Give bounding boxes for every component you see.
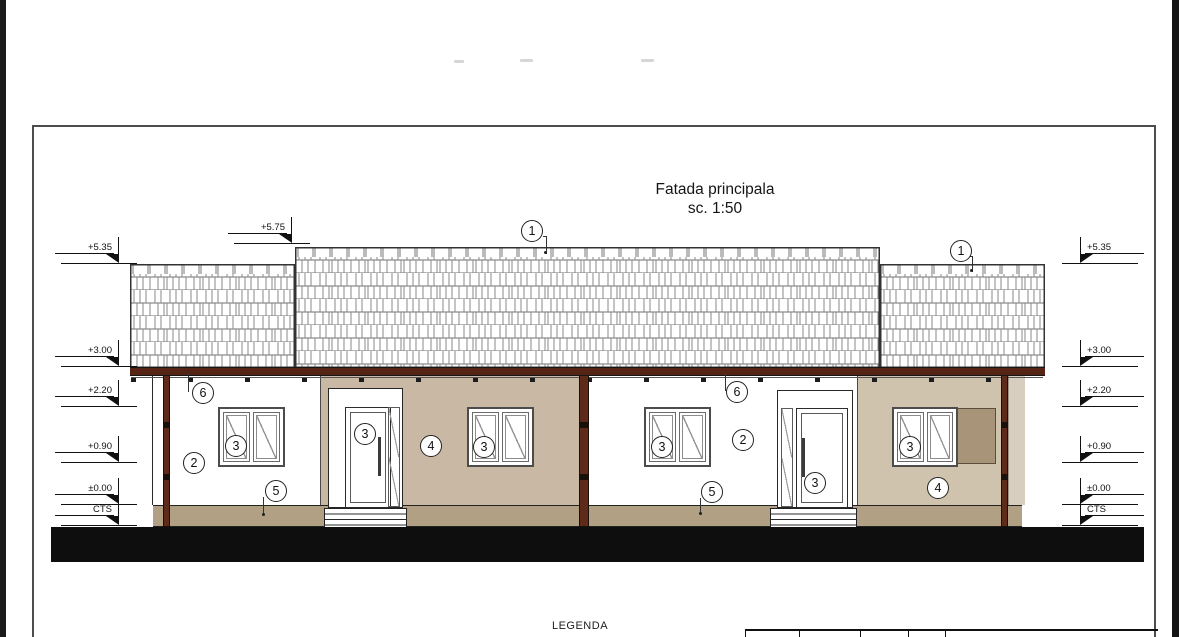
callout-number: 3 bbox=[659, 441, 666, 454]
leader-dot bbox=[544, 251, 547, 254]
ground-line bbox=[51, 527, 1144, 562]
callout-number: 6 bbox=[200, 387, 207, 400]
callout-3: 3 bbox=[354, 423, 376, 445]
level-line bbox=[1062, 462, 1138, 463]
window-casement bbox=[253, 412, 280, 462]
table-divider bbox=[860, 631, 861, 637]
level-marker-left-220: +2.20 bbox=[55, 384, 127, 408]
level-tick bbox=[1080, 237, 1081, 254]
window-casement bbox=[927, 412, 954, 462]
roof-fascia-band bbox=[130, 367, 1045, 376]
window-right-2 bbox=[892, 407, 958, 467]
level-tick bbox=[1080, 340, 1081, 357]
glass-pane bbox=[682, 415, 703, 459]
level-arrow-icon bbox=[106, 516, 119, 525]
level-label: +0.90 bbox=[88, 441, 112, 452]
page-left-black-bar bbox=[0, 0, 6, 637]
callout-5: 5 bbox=[701, 481, 723, 503]
level-line bbox=[1085, 253, 1144, 254]
roof-center-tiles bbox=[295, 247, 880, 368]
roof-right-tiles bbox=[880, 264, 1045, 368]
level-line bbox=[61, 366, 137, 367]
level-marker-left-300: +3.00 bbox=[55, 344, 127, 368]
level-marker-right-535: +5.35 bbox=[1072, 241, 1144, 265]
glass-pane bbox=[256, 415, 277, 459]
callout-number: 6 bbox=[734, 386, 741, 399]
table-divider bbox=[908, 631, 909, 637]
callout-3: 3 bbox=[473, 436, 495, 458]
level-line bbox=[1062, 406, 1138, 407]
downspout-right bbox=[1001, 376, 1008, 527]
faint-smudge bbox=[641, 59, 654, 62]
level-tick bbox=[291, 217, 292, 234]
window-casement bbox=[502, 412, 529, 462]
callout-4: 4 bbox=[420, 435, 442, 457]
leader-dot bbox=[699, 512, 702, 515]
callout-number: 4 bbox=[428, 440, 435, 453]
callout-3: 3 bbox=[899, 436, 921, 458]
glass-pane bbox=[930, 415, 951, 459]
door-leaf bbox=[796, 408, 848, 508]
door-leaf bbox=[345, 407, 391, 508]
level-line bbox=[1085, 452, 1144, 453]
level-label: +5.35 bbox=[1087, 242, 1111, 253]
callout-3: 3 bbox=[804, 472, 826, 494]
level-line bbox=[1062, 263, 1138, 264]
window-casement bbox=[679, 412, 706, 462]
level-arrow-icon bbox=[1080, 453, 1093, 462]
title-scale: sc. 1:50 bbox=[600, 199, 830, 218]
leader-line bbox=[188, 372, 189, 392]
title-block-table bbox=[745, 629, 1158, 637]
level-label: +3.00 bbox=[88, 345, 112, 356]
level-arrow-icon bbox=[1080, 516, 1093, 525]
level-line bbox=[61, 525, 137, 526]
roof-left-tiles bbox=[130, 264, 295, 368]
level-tick bbox=[118, 499, 119, 516]
level-marker-left-090: +0.90 bbox=[55, 440, 127, 464]
window-right-1 bbox=[644, 407, 711, 467]
callout-2: 2 bbox=[183, 452, 205, 474]
level-arrow-icon bbox=[106, 254, 119, 263]
callout-number: 3 bbox=[812, 477, 819, 490]
level-line bbox=[1062, 525, 1138, 526]
level-label: ±0.00 bbox=[88, 483, 112, 494]
legend-heading: LEGENDA bbox=[520, 620, 640, 632]
level-marker-right-300: +3.00 bbox=[1072, 344, 1144, 368]
level-tick bbox=[1080, 380, 1081, 397]
level-tick bbox=[118, 340, 119, 357]
level-line bbox=[61, 263, 137, 264]
level-line bbox=[61, 406, 137, 407]
level-line bbox=[61, 462, 137, 463]
faint-smudge bbox=[520, 59, 533, 62]
door-handle-icon bbox=[378, 437, 381, 476]
faint-smudge bbox=[454, 60, 464, 63]
level-marker-ridge-575: +5.75 bbox=[228, 221, 300, 245]
callout-number: 1 bbox=[529, 225, 536, 238]
door-sidelight bbox=[388, 407, 400, 507]
drawing-title: Fatada principala sc. 1:50 bbox=[600, 180, 830, 218]
level-tick bbox=[118, 478, 119, 495]
callout-4: 4 bbox=[927, 477, 949, 499]
level-arrow-icon bbox=[106, 357, 119, 366]
callout-number: 2 bbox=[740, 434, 747, 447]
level-arrow-icon bbox=[1080, 254, 1093, 263]
callout-number: 3 bbox=[233, 440, 240, 453]
callout-number: 3 bbox=[481, 441, 488, 454]
level-line bbox=[1085, 356, 1144, 357]
callout-1: 1 bbox=[950, 240, 972, 262]
level-label: +0.90 bbox=[1087, 441, 1111, 452]
level-tick bbox=[1080, 499, 1081, 516]
level-label: CTS bbox=[1087, 504, 1106, 515]
level-label: ±0.00 bbox=[1087, 483, 1111, 494]
level-marker-right-090: +0.90 bbox=[1072, 440, 1144, 464]
callout-number: 3 bbox=[362, 428, 369, 441]
level-marker-right-cts: CTS bbox=[1072, 503, 1144, 527]
level-label: +5.75 bbox=[261, 222, 285, 233]
callout-6: 6 bbox=[192, 382, 214, 404]
level-arrow-icon bbox=[106, 397, 119, 406]
glass-pane bbox=[505, 415, 526, 459]
entrance-door-left bbox=[328, 388, 403, 508]
callout-number: 5 bbox=[273, 485, 280, 498]
wall-corner-strip bbox=[1008, 376, 1025, 505]
downspout-left bbox=[163, 376, 170, 527]
downspout-center bbox=[579, 376, 589, 527]
callout-number: 5 bbox=[709, 486, 716, 499]
callout-number: 4 bbox=[935, 482, 942, 495]
level-label: +3.00 bbox=[1087, 345, 1111, 356]
level-line bbox=[1085, 515, 1144, 516]
door-sidelight bbox=[781, 408, 793, 507]
level-line bbox=[234, 243, 310, 244]
level-label: +2.20 bbox=[88, 385, 112, 396]
callout-5: 5 bbox=[265, 480, 287, 502]
level-tick bbox=[1080, 478, 1081, 495]
callout-2: 2 bbox=[732, 429, 754, 451]
level-marker-left-cts: CTS bbox=[55, 503, 127, 527]
table-divider bbox=[945, 631, 946, 637]
entrance-steps-right bbox=[770, 508, 857, 528]
level-tick bbox=[118, 436, 119, 453]
level-arrow-icon bbox=[279, 234, 292, 243]
level-tick bbox=[118, 380, 119, 397]
callout-number: 1 bbox=[958, 245, 965, 258]
level-line bbox=[1085, 396, 1144, 397]
entrance-steps-left bbox=[324, 508, 407, 528]
title-line1: Fatada principala bbox=[600, 180, 830, 199]
level-arrow-icon bbox=[1080, 397, 1093, 406]
level-arrow-icon bbox=[1080, 357, 1093, 366]
callout-3: 3 bbox=[651, 436, 673, 458]
level-label: +2.20 bbox=[1087, 385, 1111, 396]
drawing-sheet: Fatada principala sc. 1:50 bbox=[0, 0, 1179, 637]
level-tick bbox=[1080, 436, 1081, 453]
table-divider bbox=[799, 631, 800, 637]
level-label: CTS bbox=[93, 504, 112, 515]
callout-3: 3 bbox=[225, 435, 247, 457]
callout-number: 2 bbox=[191, 457, 198, 470]
callout-1: 1 bbox=[521, 220, 543, 242]
level-label: +5.35 bbox=[88, 242, 112, 253]
leader-dot bbox=[970, 269, 973, 272]
table-divider bbox=[745, 631, 746, 637]
window-shutter-box bbox=[957, 408, 996, 464]
level-arrow-icon bbox=[106, 453, 119, 462]
level-line bbox=[1085, 494, 1144, 495]
leader-dot bbox=[262, 513, 265, 516]
level-line bbox=[1062, 366, 1138, 367]
page-right-black-bar bbox=[1172, 0, 1179, 637]
level-tick bbox=[118, 237, 119, 254]
callout-number: 3 bbox=[907, 441, 914, 454]
callout-6: 6 bbox=[726, 381, 748, 403]
level-marker-left-535: +5.35 bbox=[55, 241, 127, 265]
door-handle-icon bbox=[802, 438, 805, 477]
level-marker-right-220: +2.20 bbox=[1072, 384, 1144, 408]
